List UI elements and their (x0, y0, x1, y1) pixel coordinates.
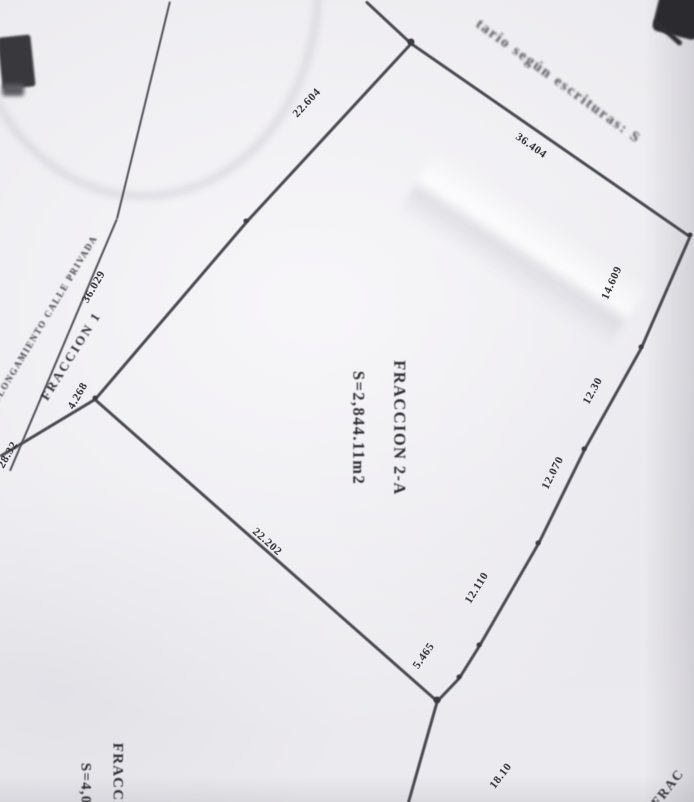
vertex-dot (582, 447, 587, 452)
edge-right-5465 (458, 645, 480, 679)
escrituras-annotation: tario según escrituras: S (472, 16, 644, 148)
vertex-dot (244, 219, 249, 224)
parcel-2a-area: S=2,844.11m2 (338, 360, 379, 496)
scan-arc-shadow (0, 0, 320, 198)
vertex-dot (477, 643, 482, 648)
edge-right-12110 (478, 543, 539, 646)
parcel-2a-name: FRACCION 2-A (379, 360, 420, 496)
edge-left-upper (94, 221, 247, 400)
vertex-dot (688, 233, 693, 238)
scanned-survey-plan: 22.604 36.404 14.609 12.30 12.070 12.110… (0, 0, 694, 802)
scan-edge-shadow-right (644, 0, 694, 802)
parcel-bottom-area: S=4,00 (70, 743, 102, 802)
parcel-bottom-label: FRACCION S=4,00 (70, 743, 133, 802)
parcel-2a-label: FRACCION 2-A S=2,844.11m2 (338, 360, 421, 496)
measurement-label-36029: 36.029 (80, 269, 108, 306)
parcel-bottom-name: FRACCION (101, 743, 133, 802)
measurement-label-12110: 12.110 (463, 570, 492, 606)
measurement-label-5465: 5.465 (411, 641, 437, 672)
vertex-dot (434, 697, 441, 704)
vertex-dot (639, 345, 644, 350)
measurement-label-12070: 12.070 (540, 455, 567, 492)
measurement-label-1230: 12.30 (581, 375, 605, 406)
scan-blob-top-left-smudge (2, 84, 24, 96)
vertex-dot (408, 39, 415, 46)
edge-approach-top (365, 0, 412, 44)
measurement-label-4268: 4.268 (66, 380, 91, 411)
vertex-dot (457, 675, 462, 680)
vertex-dot (93, 396, 98, 401)
scan-blob-top-left (0, 34, 36, 89)
vertex-dot (536, 541, 541, 546)
